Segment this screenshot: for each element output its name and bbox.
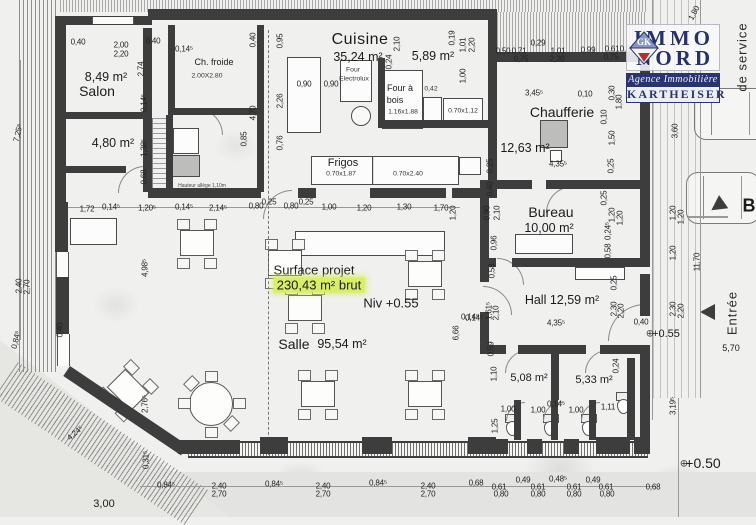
wall <box>546 180 650 189</box>
dimension-label: 0,40 <box>486 182 495 197</box>
dimension-label: 2,20 <box>550 55 565 64</box>
equipment-label: bois <box>387 95 404 105</box>
dimension-label: 0,24⁵ <box>604 222 613 240</box>
dimension-label: 1,50 <box>608 131 617 146</box>
logo-agency-name: KARTHEISER <box>626 86 720 103</box>
dimension-label: 2,10 <box>492 306 501 321</box>
dimension-label: 1,38⁵ <box>140 139 149 157</box>
dimension-label: 0,96 <box>490 236 499 251</box>
dimension-label: 2,20 <box>468 38 477 53</box>
wall <box>527 439 542 454</box>
dimension-label: 2,20 <box>617 304 626 319</box>
fixture-box <box>515 234 573 254</box>
dimension-label: 2,70 <box>23 280 32 295</box>
wall <box>55 16 66 202</box>
window-band-south <box>188 441 648 458</box>
dimension-label: 0,84⁵ <box>157 481 175 490</box>
immo-nord-logo: GK IMMO NORD Agence Immobilière KARTHEIS… <box>626 24 720 103</box>
dimension-label: 2,26 <box>276 94 285 109</box>
dimension-label: 0,85 <box>240 132 249 147</box>
dimension-label: 0,95 <box>276 34 285 49</box>
dimension-label: 1,20 <box>677 210 686 225</box>
dimension-label: 0,40 <box>249 33 258 48</box>
wall <box>362 437 392 454</box>
table-with-chairs <box>169 217 225 269</box>
level-label: +0.55 <box>652 328 680 340</box>
dimension-label: 11,70 <box>693 253 702 271</box>
room-label-salon: Salon <box>79 83 115 99</box>
dimension-label: 3,60 <box>671 124 680 139</box>
dimension-label: 0,40 <box>634 318 649 327</box>
wall <box>490 439 508 454</box>
dimension-label: 0,80 <box>567 490 582 499</box>
area-label: 35,24 m² <box>333 50 382 64</box>
dimension-label: 0,48⁵ <box>549 475 567 484</box>
wall <box>64 112 143 119</box>
dimension-label: 1,20 <box>669 246 678 261</box>
fixture-box <box>172 155 200 177</box>
dimension-label: 4,98⁵ <box>141 259 150 277</box>
dimension-label: 3,19⁵ <box>669 397 678 415</box>
area-label: 5,33 m² <box>575 374 612 386</box>
dimension-label: 0,68 <box>140 170 149 185</box>
dimension-label: 1,00 <box>501 405 516 414</box>
wall <box>452 188 480 198</box>
dimension-label: 0,29 <box>531 39 546 48</box>
dimension-label: 0,75 <box>514 55 529 64</box>
dimension-label: 2,76⁵ <box>141 395 150 413</box>
wall <box>370 188 446 198</box>
dimension-label: 1,20 <box>449 206 458 221</box>
wall <box>64 166 126 173</box>
arrow-marker <box>700 304 715 320</box>
dimension-label: 0,40 <box>56 323 65 338</box>
dimension-label: 1,72 <box>80 205 95 214</box>
reference-line <box>688 216 728 218</box>
wall <box>640 274 650 316</box>
room-label-chfroide: Ch. froide <box>194 57 233 67</box>
wall <box>488 180 532 189</box>
room-label-bureau: Bureau <box>528 204 573 220</box>
service-entrance-label: de service <box>735 22 750 91</box>
dimension-label: 0,75 <box>604 53 619 62</box>
size-label: 1.16x1.88 <box>388 109 418 116</box>
walkway-hatch-left <box>19 0 56 372</box>
dimension-label: 0,25 <box>610 276 619 291</box>
dimension-label: 3,00 <box>93 498 114 510</box>
table-with-chairs <box>397 368 453 420</box>
dimension-label: 4,70 <box>249 106 258 121</box>
fixture-box <box>459 157 481 175</box>
level-marker: ⊕ <box>646 329 654 340</box>
dimension-label: 0,90 <box>324 80 339 89</box>
wall <box>260 437 288 454</box>
dimension-label: 1,20 <box>616 211 625 226</box>
dimension-label: 4,35⁵ <box>547 319 565 328</box>
dimension-label: 1,20⁵ <box>138 204 156 213</box>
wall <box>148 188 261 198</box>
dimension-label: 0,14⁵ <box>175 45 193 54</box>
reference-line <box>20 60 21 340</box>
equipment-label: Electrolux <box>339 76 369 83</box>
area-label: 5,08 m² <box>510 372 547 384</box>
dimension-label: 1,01 <box>459 38 468 53</box>
logo-diamond-icon: GK <box>629 31 659 65</box>
logo-tagline: Agence Immobilière <box>626 73 720 86</box>
table-with-chairs <box>290 368 346 420</box>
dimension-label: 1,00 <box>531 406 546 415</box>
size-label: 0.70x1.87 <box>326 171 356 178</box>
dimension-label: 0,25 <box>486 159 495 174</box>
size-label: 0.70x1.12 <box>448 108 478 115</box>
svg-text:GK: GK <box>637 37 651 47</box>
fixture-box <box>70 218 117 245</box>
dimension-label: 0,49 <box>516 476 531 485</box>
dimension-label: 0,25 <box>299 198 314 207</box>
dimension-label: 0,84⁵ <box>265 480 283 489</box>
area-label: 5,89 m² <box>412 49 454 63</box>
dimension-label: 0,80 <box>600 490 615 499</box>
dimension-label: 2,74 <box>137 62 146 77</box>
dimension-label: 2,20 <box>677 304 686 319</box>
reference-line <box>678 398 679 517</box>
note-label: Hauteur allège 1,10m <box>178 183 226 189</box>
dimension-label: 0,42 <box>424 86 437 93</box>
dimension-label: 0,90 <box>483 206 492 221</box>
area-label: 8,49 m² <box>85 70 127 84</box>
dimension-label: 0,58 <box>604 244 613 259</box>
dimension-label: 2,70 <box>421 490 436 499</box>
dimension-label: 0,99 <box>581 46 596 55</box>
area-label: 4,80 m² <box>92 136 134 150</box>
dimension-label: 0,68 <box>646 483 661 492</box>
dimension-label: 1,80 <box>615 95 624 110</box>
axis-dashed-line <box>268 30 270 455</box>
dimension-label: 0,68 <box>469 479 484 488</box>
equipment-label: Four <box>346 67 360 74</box>
wall <box>298 188 316 198</box>
dimension-label: 0,80 <box>284 202 299 211</box>
wall <box>601 439 616 454</box>
wall <box>634 437 650 454</box>
dimension-label: 0,59 <box>487 342 496 357</box>
wall <box>589 400 596 440</box>
dimension-label: 2,70 <box>316 490 331 499</box>
equipment-label: Frigos <box>328 157 359 169</box>
dimension-label: 1,20 <box>357 204 372 213</box>
size-label: 2.00X2.80 <box>192 73 223 80</box>
dimension-label: 0,10 <box>578 90 593 99</box>
dimension-label: 5,70 <box>722 343 740 353</box>
wall <box>551 352 559 400</box>
dimension-label: 0,84⁵ <box>369 479 387 488</box>
dimension-label: 1,11 <box>601 403 615 412</box>
dimension-label: 0,31⁵ <box>142 451 151 469</box>
dimension-label: 2,14⁵ <box>209 204 227 213</box>
section-marker-label: B <box>743 196 756 217</box>
dimension-label: 0,25 <box>262 198 277 207</box>
room-label-hall: Hall 12,59 m² <box>525 293 599 307</box>
dimension-label: 2,70 <box>212 490 227 499</box>
dimension-label: 0,24 <box>612 359 621 374</box>
wall <box>257 110 264 192</box>
fixture-box <box>287 57 321 133</box>
sink-icon <box>351 106 371 126</box>
wall <box>168 25 175 110</box>
dimension-label: 0,25 <box>607 159 616 174</box>
wall <box>564 439 579 454</box>
dimension-label: 6,66 <box>452 326 461 341</box>
dimension-label: 0,14⁵ <box>547 400 565 409</box>
dimension-label: 2,10 <box>493 206 502 221</box>
equipment-label: Four à <box>387 83 413 93</box>
window-north-1 <box>92 17 134 24</box>
dimension-label: 0,50 <box>496 47 511 56</box>
room-label-cuisine: Cuisine <box>332 31 389 49</box>
area-label: 12,63 m² <box>500 141 549 155</box>
wall <box>148 9 494 20</box>
dimension-label: 0,76 <box>276 136 285 151</box>
window-west-1 <box>56 252 69 277</box>
dimension-label: 1,70 <box>434 204 449 213</box>
level-label: +0.50 <box>685 455 720 471</box>
dimension-label: 2,10 <box>393 37 402 52</box>
surface-project-value: 230,43 m² brut <box>274 278 365 293</box>
room-label-salle: Salle <box>278 336 309 352</box>
level-label: Niv +0.55 <box>363 296 418 311</box>
dimension-label: 0,14⁵ <box>461 313 479 322</box>
wall <box>178 440 240 454</box>
dimension-label: 3,45⁵ <box>525 89 543 98</box>
dimension-label: 2,20 <box>114 50 129 59</box>
dimension-label: 1,25 <box>491 419 500 434</box>
wall <box>257 25 264 110</box>
dimension-label: 1,00 <box>459 69 468 84</box>
dimension-label: 0,19 <box>448 31 457 46</box>
floor-plan: GK IMMO NORD Agence Immobilière KARTHEIS… <box>0 0 756 517</box>
wall <box>378 120 490 128</box>
entrance-label: Entrée <box>725 291 740 335</box>
dimension-label: 0,14⁵ <box>102 203 120 212</box>
wall <box>640 198 650 262</box>
dimension-label: 0,14⁵ <box>140 94 149 112</box>
logo-panel: GK IMMO NORD <box>626 24 720 71</box>
dimension-label: 0,80 <box>494 490 509 499</box>
dimension-label: 0,90 <box>297 80 312 89</box>
dimension-label: 1,00 <box>569 406 584 415</box>
area-label: 95,54 m² <box>317 337 366 351</box>
room-label-chaufferie: Chaufferie <box>530 104 594 120</box>
wall <box>166 115 173 192</box>
table-with-chairs <box>397 248 453 300</box>
dimension-label: 0,25 <box>600 191 609 206</box>
round-table-with-chairs <box>178 371 244 437</box>
wall <box>55 202 68 252</box>
dimension-label: 1,30 <box>397 203 412 212</box>
level-marker: ⊕ <box>680 459 688 470</box>
dimension-label: 0,80 <box>531 490 546 499</box>
wall <box>512 258 650 267</box>
surface-project-label: Surface projet <box>274 263 355 278</box>
dimension-label: 0,58 <box>488 264 497 279</box>
wall <box>627 358 635 440</box>
dimension-label: 0,24 <box>385 55 394 70</box>
area-label: 10,00 m² <box>524 221 573 235</box>
dimension-label: 1,00 <box>322 203 337 212</box>
dimension-label: 1,10 <box>490 367 499 382</box>
dimension-label: 0,10 <box>600 110 609 125</box>
size-label: 0.70x2.40 <box>393 171 423 178</box>
dimension-label: 0,40 <box>71 38 86 47</box>
dimension-label: 2,00 <box>114 41 129 50</box>
window-west-2 <box>57 334 70 366</box>
dimension-label: 4,35⁵ <box>549 160 567 169</box>
dimension-label: 0,40 <box>146 37 161 46</box>
dimension-label: 0,14⁵ <box>175 203 193 212</box>
